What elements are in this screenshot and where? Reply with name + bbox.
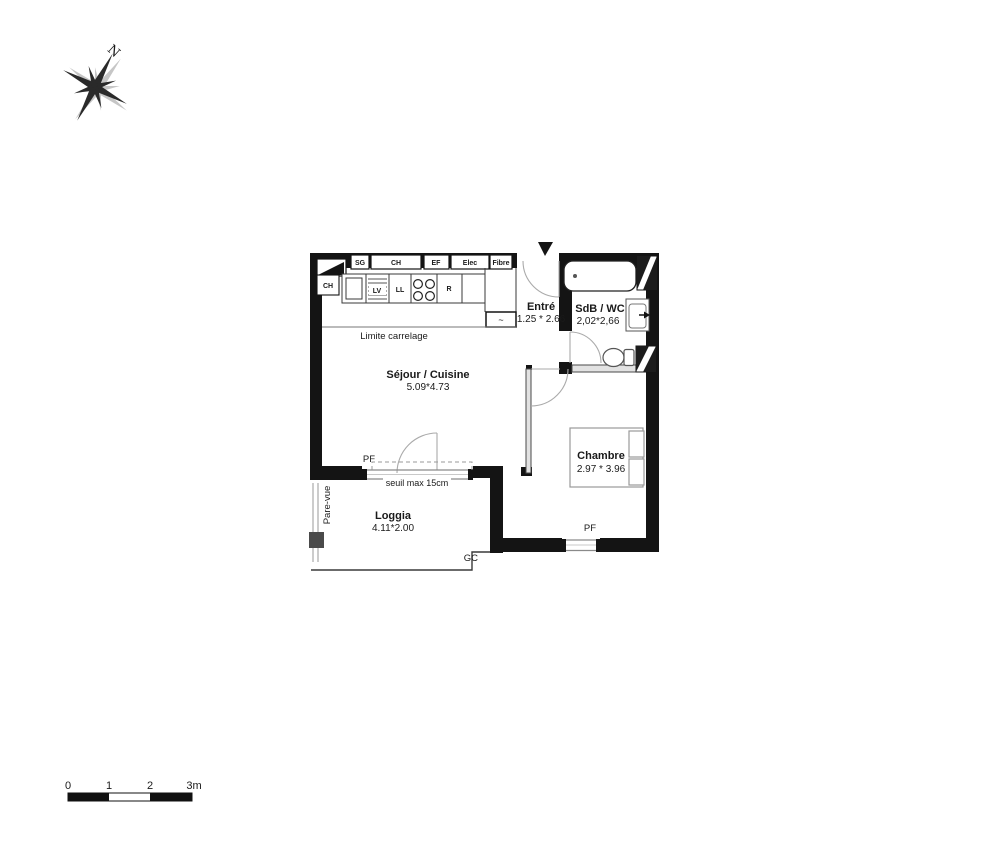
duct-bottom-icon xyxy=(636,346,656,372)
sejour-name: Séjour / Cuisine xyxy=(386,369,469,381)
sejour-dims: 5.09*4.73 xyxy=(407,382,450,393)
fridge-label: R xyxy=(446,286,451,293)
wall-post-sdb-door xyxy=(559,362,572,374)
chambre-window xyxy=(566,540,596,551)
window-bay-dashed xyxy=(372,462,472,470)
wall-sejour-bottom-left xyxy=(310,466,362,480)
pillow-top xyxy=(629,431,644,457)
duct-top-icon xyxy=(637,256,657,290)
toilet-icon xyxy=(603,349,634,367)
scale-tick-3: 3m xyxy=(186,780,201,792)
box-sg-label: SG xyxy=(355,260,366,267)
chambre-name: Chambre xyxy=(577,450,625,462)
sejour-window xyxy=(367,462,472,479)
loggia-door xyxy=(397,433,437,473)
entree-column: ~ xyxy=(485,268,516,327)
entree-name: Entré xyxy=(527,301,555,313)
sink-icon xyxy=(346,278,362,299)
washbasin-icon xyxy=(626,299,650,331)
pare-vue-label: Pare-vue xyxy=(322,486,333,525)
entrance-arrow-icon xyxy=(538,242,553,256)
box-ch-label: CH xyxy=(391,260,401,267)
loggia-dims: 4.11*2.00 xyxy=(372,523,415,534)
box-fibre-label: Fibre xyxy=(492,260,509,267)
scale-seg-1 xyxy=(68,793,109,801)
counter-outline xyxy=(342,274,485,303)
chambre-window-jamb-right xyxy=(596,539,600,552)
partition-sejour-chambre xyxy=(526,369,531,473)
chambre-window-jamb-left xyxy=(562,539,566,552)
vmc-symbol: ~ xyxy=(498,315,503,325)
entry-door xyxy=(523,261,559,297)
scale-tick-0: 0 xyxy=(65,780,71,792)
box-ef-label: EF xyxy=(432,260,442,267)
box-elec-label: Elec xyxy=(463,260,478,267)
seuil-label: seuil max 15cm xyxy=(386,478,449,488)
scale-tick-1: 1 xyxy=(106,780,112,792)
pf-sejour-label: PF xyxy=(363,454,375,465)
kitchen-ch-label: CH xyxy=(323,283,333,290)
window-jamb-right xyxy=(468,469,473,480)
washer-label: LL xyxy=(396,287,405,294)
wall-chambre-bottom-left xyxy=(503,538,562,552)
sdb-door xyxy=(570,332,601,363)
limite-carrelage-label: Limite carrelage xyxy=(360,331,428,342)
scale-bar: 0 1 2 3m xyxy=(65,780,202,801)
dishwasher-label: LV xyxy=(373,288,382,295)
wall-loggia-chambre xyxy=(490,466,503,553)
pillow-bottom xyxy=(629,459,644,485)
sdb-name: SdB / WC xyxy=(575,303,625,315)
floor-plan-drawing: N SG CH EF Elec xyxy=(0,0,1000,857)
north-label: N xyxy=(104,42,122,61)
loggia-post xyxy=(309,532,324,548)
chambre-door xyxy=(531,369,568,406)
pf-chambre-label: PF xyxy=(584,523,596,534)
scale-seg-3 xyxy=(150,793,192,801)
wall-right xyxy=(646,253,659,552)
scale-tick-2: 2 xyxy=(147,780,153,792)
kitchen-counter: CH LV LL R xyxy=(317,274,485,303)
compass-rose: N xyxy=(61,42,134,127)
loggia-name: Loggia xyxy=(375,510,412,522)
chambre-dims: 2.97 * 3.96 xyxy=(577,464,626,475)
wall-chambre-bottom-right xyxy=(600,538,659,552)
bathtub-drain xyxy=(573,274,577,278)
sdb-dims: 2,02*2,66 xyxy=(577,316,620,327)
floor-plan-page: N SG CH EF Elec xyxy=(0,0,1000,857)
gc-label: GC xyxy=(464,553,478,564)
window-jamb-left xyxy=(362,469,367,480)
entree-dims: 1.25 * 2.66 xyxy=(517,314,566,325)
